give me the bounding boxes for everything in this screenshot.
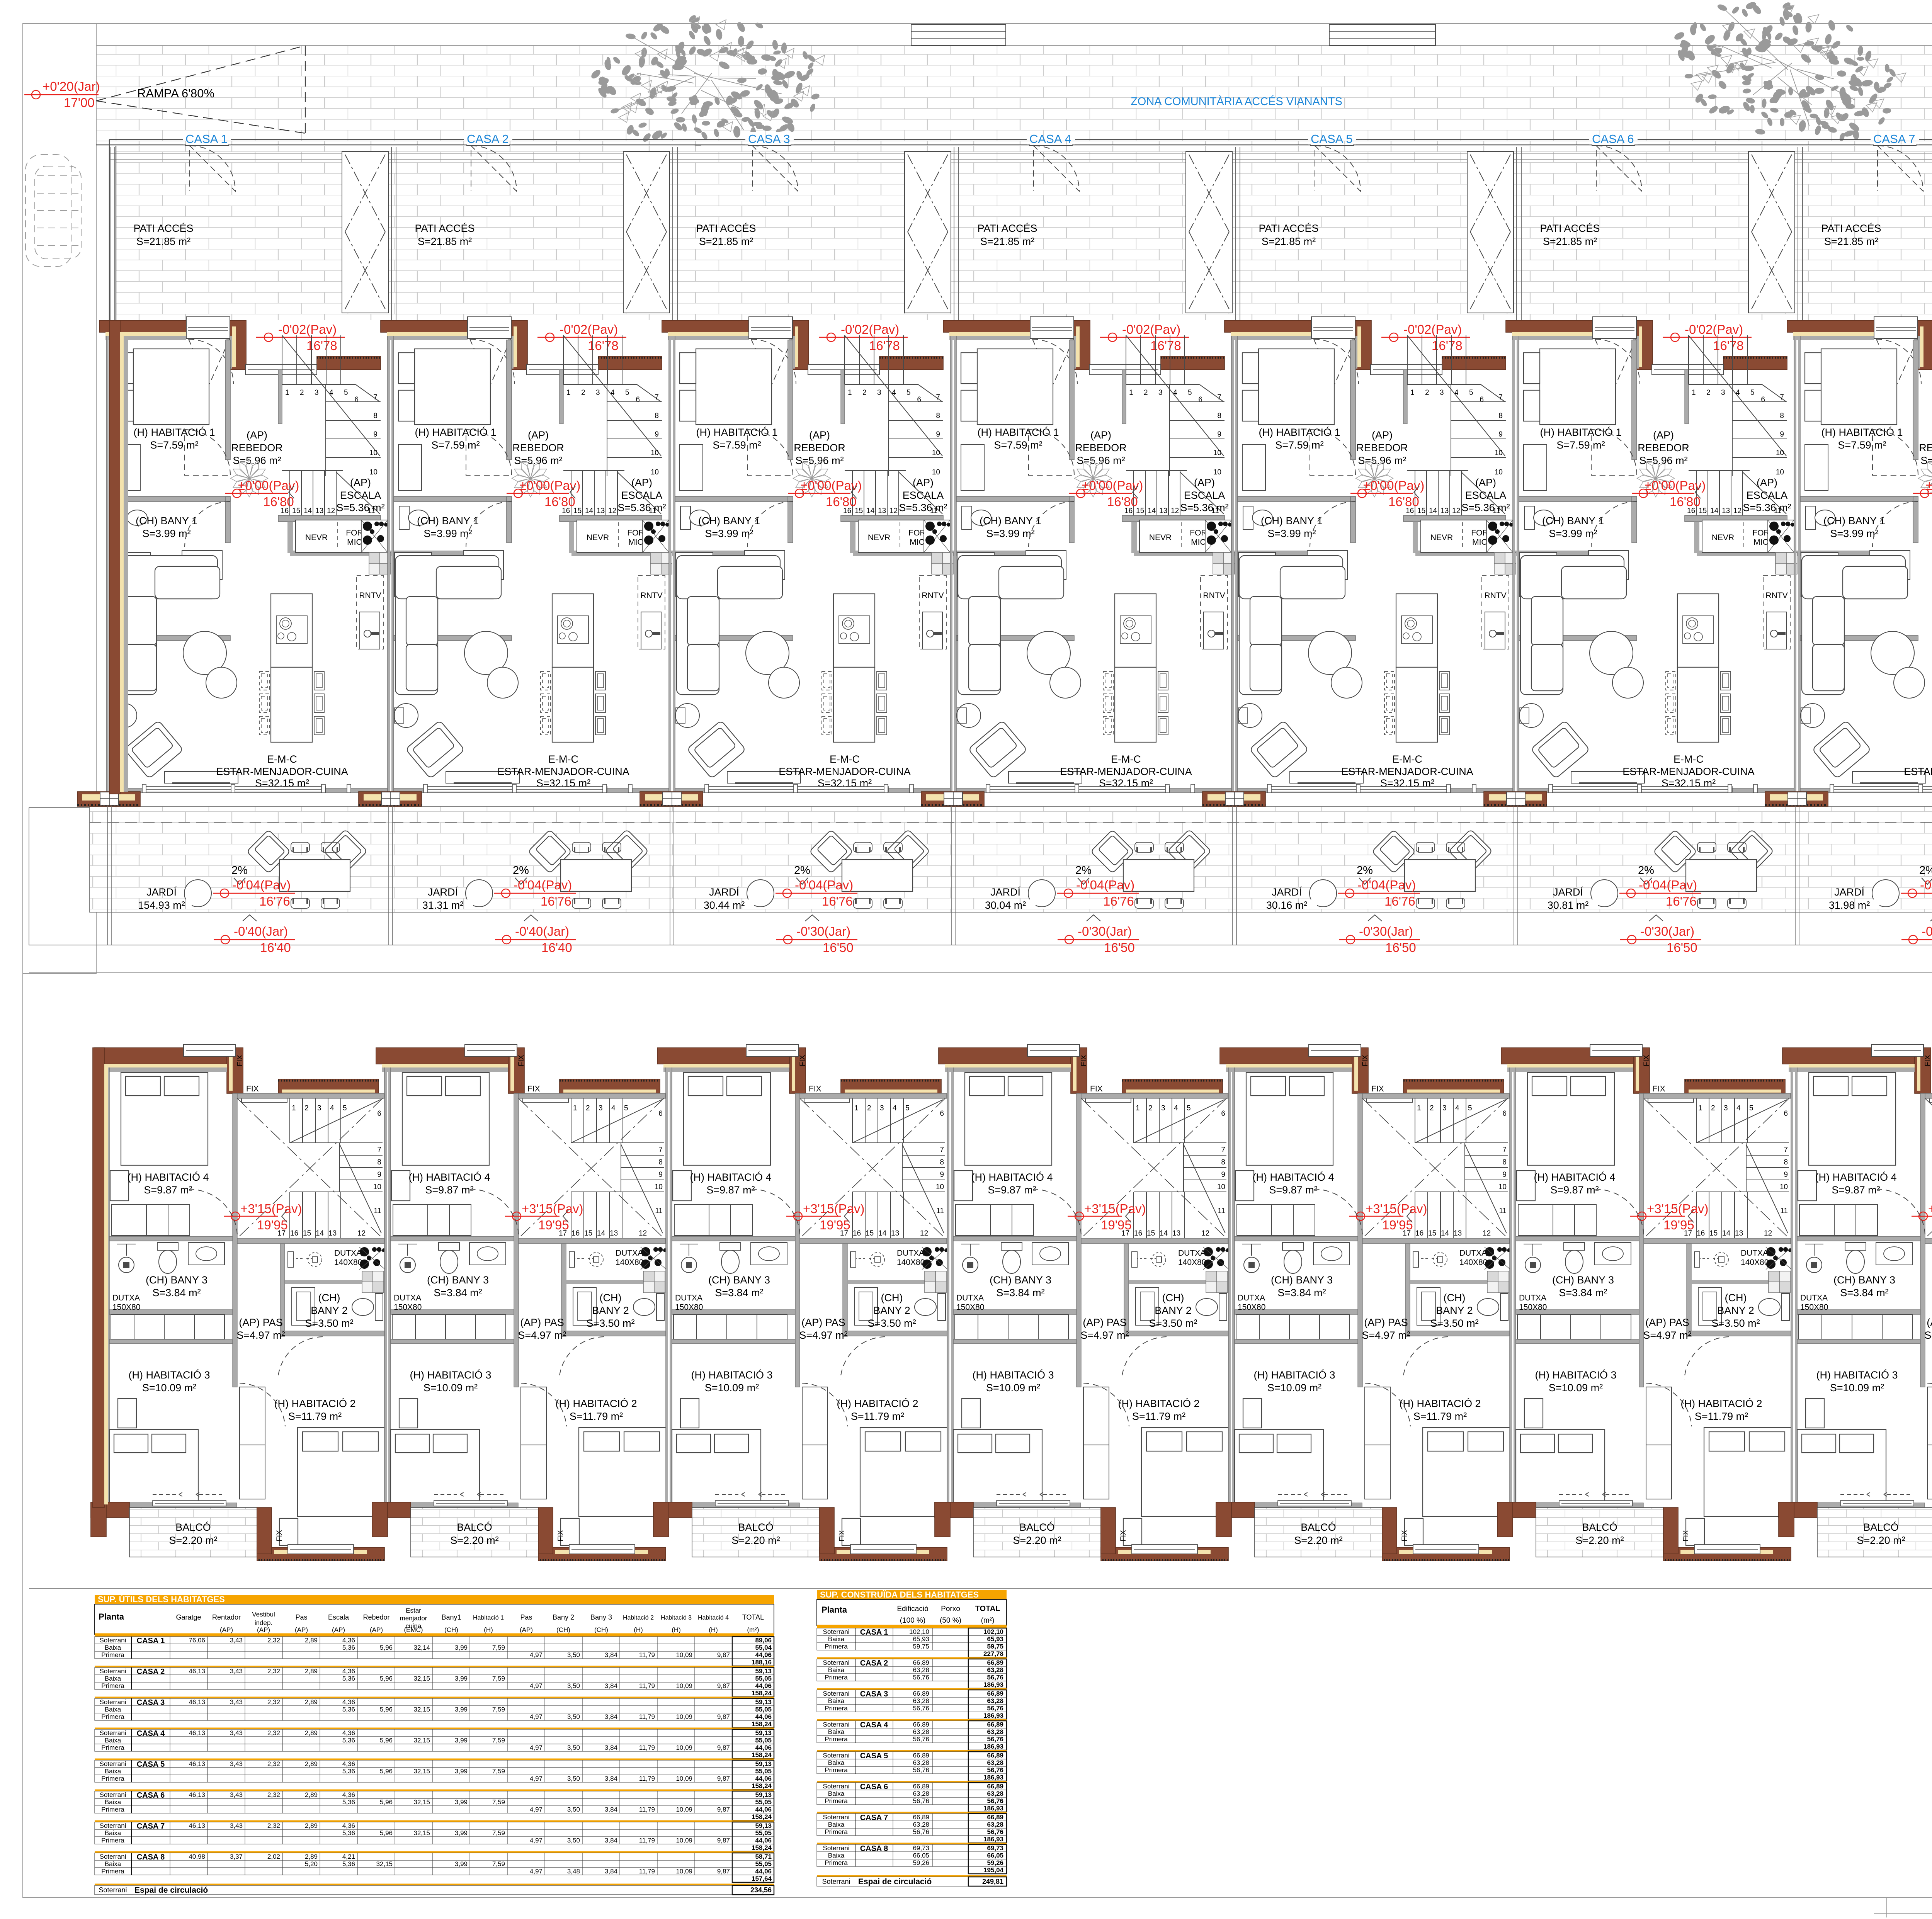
svg-text:63,28: 63,28 [987,1790,1003,1797]
svg-text:2,89: 2,89 [305,1822,318,1829]
svg-text:3,48: 3,48 [567,1868,580,1875]
svg-text:2,32: 2,32 [267,1791,280,1798]
svg-text:(H): (H) [484,1626,493,1633]
svg-text:Primera: Primera [101,1775,124,1782]
svg-text:CASA 4: CASA 4 [860,1721,888,1729]
svg-text:65,93: 65,93 [987,1635,1003,1643]
svg-text:Baixa: Baixa [105,1829,121,1837]
svg-text:249,81: 249,81 [982,1878,1003,1885]
svg-text:30.04 m²: 30.04 m² [985,899,1026,911]
svg-text:CASA 8: CASA 8 [860,1844,888,1853]
svg-text:16'50: 16'50 [1104,940,1135,955]
svg-text:4,21: 4,21 [342,1853,355,1860]
svg-text:55,05: 55,05 [755,1737,772,1744]
svg-text:CASA 2: CASA 2 [860,1659,888,1667]
svg-text:7,59: 7,59 [492,1798,505,1806]
svg-text:(m²): (m²) [981,1616,995,1625]
svg-text:2,32: 2,32 [267,1698,280,1706]
svg-text:(50 %): (50 %) [940,1616,961,1625]
svg-text:Primera: Primera [825,1643,848,1650]
svg-text:(H): (H) [709,1626,718,1633]
svg-text:5,36: 5,36 [342,1644,355,1651]
svg-text:32,15: 32,15 [413,1829,430,1837]
svg-text:46,13: 46,13 [189,1822,205,1829]
svg-text:Baixa: Baixa [828,1666,845,1674]
svg-text:3,99: 3,99 [455,1737,468,1744]
svg-text:66,89: 66,89 [987,1752,1003,1759]
svg-text:158,24: 158,24 [752,1690,772,1697]
svg-text:55,05: 55,05 [755,1675,772,1682]
svg-text:Espai de circulació: Espai de circulació [134,1886,208,1895]
svg-text:TOTAL: TOTAL [742,1613,764,1621]
svg-text:56,76: 56,76 [913,1828,929,1836]
svg-text:59,13: 59,13 [755,1760,772,1768]
svg-text:CASA 3: CASA 3 [860,1690,888,1698]
svg-text:Soterrani: Soterrani [822,1878,850,1885]
svg-text:56,76: 56,76 [913,1674,929,1681]
svg-text:102,10: 102,10 [983,1628,1003,1635]
svg-text:46,13: 46,13 [189,1791,205,1798]
svg-text:31.31 m²: 31.31 m² [422,899,464,911]
svg-text:17'00: 17'00 [64,95,95,110]
svg-text:-0'30(Jar): -0'30(Jar) [1922,924,1932,938]
svg-text:4,36: 4,36 [342,1760,355,1768]
svg-text:-0'30(Jar): -0'30(Jar) [796,924,850,938]
svg-text:30.81 m²: 30.81 m² [1548,899,1589,911]
svg-text:Soterrani: Soterrani [100,1822,126,1829]
svg-text:3,99: 3,99 [455,1706,468,1713]
svg-text:31.98 m²: 31.98 m² [1829,899,1870,911]
svg-text:5,36: 5,36 [342,1706,355,1713]
svg-text:Baixa: Baixa [828,1821,845,1828]
svg-text:59,13: 59,13 [755,1822,772,1829]
svg-text:Pas: Pas [520,1613,532,1621]
svg-text:3,84: 3,84 [605,1775,617,1782]
svg-text:CASA 7: CASA 7 [860,1814,888,1822]
svg-text:Vestibul: Vestibul [252,1611,275,1618]
svg-text:234,56: 234,56 [750,1886,772,1894]
svg-text:9,87: 9,87 [717,1651,730,1659]
svg-text:10,09: 10,09 [676,1713,692,1720]
svg-text:Primera: Primera [825,1735,848,1743]
svg-text:186,93: 186,93 [983,1712,1003,1719]
svg-text:2,32: 2,32 [267,1729,280,1737]
svg-text:63,28: 63,28 [987,1666,1003,1674]
svg-text:3,50: 3,50 [567,1744,580,1751]
svg-text:2,89: 2,89 [305,1729,318,1737]
svg-text:63,28: 63,28 [913,1759,929,1766]
svg-text:46,13: 46,13 [189,1698,205,1706]
svg-text:2,32: 2,32 [267,1760,280,1768]
svg-text:CASA 4: CASA 4 [137,1729,165,1738]
svg-text:5,96: 5,96 [380,1644,393,1651]
svg-text:102,10: 102,10 [909,1628,929,1635]
svg-text:Habitació 1: Habitació 1 [473,1615,504,1621]
svg-text:Rentador: Rentador [212,1613,241,1621]
svg-text:4,97: 4,97 [530,1837,543,1844]
svg-text:11,79: 11,79 [639,1806,655,1813]
svg-text:16'50: 16'50 [1667,940,1697,955]
svg-text:66,89: 66,89 [913,1690,929,1697]
svg-text:69,73: 69,73 [913,1844,929,1852]
svg-text:3,43: 3,43 [230,1791,243,1798]
svg-text:CASA 4: CASA 4 [1029,132,1071,146]
svg-text:-0'30(Jar): -0'30(Jar) [1359,924,1413,938]
svg-text:Soterrani: Soterrani [100,1667,126,1675]
svg-text:59,75: 59,75 [913,1643,929,1650]
svg-text:16'40: 16'40 [541,940,572,955]
svg-text:Soterrani: Soterrani [100,1791,126,1798]
svg-text:Soterrani: Soterrani [823,1659,850,1666]
svg-text:7,59: 7,59 [492,1706,505,1713]
svg-text:55,05: 55,05 [755,1860,772,1868]
svg-text:3,50: 3,50 [567,1837,580,1844]
svg-text:56,76: 56,76 [913,1735,929,1743]
svg-text:CASA 2: CASA 2 [467,132,509,146]
svg-text:3,99: 3,99 [455,1829,468,1837]
svg-text:11,79: 11,79 [639,1682,655,1690]
svg-text:Primera: Primera [101,1868,124,1875]
svg-text:66,05: 66,05 [987,1852,1003,1859]
svg-text:Habitació 3: Habitació 3 [661,1615,692,1621]
svg-text:11,79: 11,79 [639,1775,655,1782]
svg-text:SUP. ÚTILS DELS HABITATGES: SUP. ÚTILS DELS HABITATGES [98,1594,225,1604]
svg-text:3,99: 3,99 [455,1768,468,1775]
svg-text:CASA 7: CASA 7 [1873,132,1915,146]
svg-text:3,84: 3,84 [605,1837,617,1844]
svg-text:5,96: 5,96 [380,1675,393,1682]
svg-text:66,89: 66,89 [913,1721,929,1728]
svg-text:3,37: 3,37 [230,1853,243,1860]
svg-text:154.93 m²: 154.93 m² [138,899,185,911]
svg-text:46,13: 46,13 [189,1667,205,1675]
svg-text:5,96: 5,96 [380,1768,393,1775]
svg-text:3,50: 3,50 [567,1775,580,1782]
svg-text:Primera: Primera [101,1682,124,1690]
svg-text:59,13: 59,13 [755,1667,772,1675]
svg-text:3,99: 3,99 [455,1860,468,1868]
svg-text:5,36: 5,36 [342,1737,355,1744]
svg-text:Soterrani: Soterrani [823,1783,850,1790]
svg-text:Baixa: Baixa [105,1768,121,1775]
svg-text:157,64: 157,64 [752,1875,772,1882]
svg-text:11,79: 11,79 [639,1713,655,1720]
svg-text:4,97: 4,97 [530,1744,543,1751]
svg-text:-0'30(Jar): -0'30(Jar) [1078,924,1132,938]
svg-text:2,89: 2,89 [305,1791,318,1798]
svg-text:59,13: 59,13 [755,1729,772,1737]
svg-text:56,76: 56,76 [913,1797,929,1805]
svg-text:Primera: Primera [101,1806,124,1813]
svg-text:menjador: menjador [400,1615,427,1622]
svg-text:CASA 6: CASA 6 [1592,132,1634,146]
svg-text:195,04: 195,04 [983,1866,1004,1874]
svg-text:Primera: Primera [101,1744,124,1751]
svg-text:CASA 6: CASA 6 [860,1783,888,1791]
svg-text:32,14: 32,14 [413,1644,430,1651]
svg-text:11,79: 11,79 [639,1651,655,1659]
svg-text:7,59: 7,59 [492,1675,505,1682]
svg-text:Baixa: Baixa [828,1728,845,1735]
svg-text:(H): (H) [672,1626,681,1633]
svg-text:Primera: Primera [825,1766,848,1774]
svg-text:CASA 3: CASA 3 [137,1698,165,1707]
svg-text:(CH): (CH) [594,1626,608,1633]
svg-text:11,79: 11,79 [639,1868,655,1875]
svg-text:32,15: 32,15 [413,1768,430,1775]
svg-text:(100 %): (100 %) [900,1616,926,1625]
svg-text:Soterrani: Soterrani [823,1814,850,1821]
svg-text:9,87: 9,87 [717,1806,730,1813]
svg-text:7,59: 7,59 [492,1860,505,1868]
svg-text:Baixa: Baixa [105,1860,121,1868]
svg-text:4,36: 4,36 [342,1637,355,1644]
svg-text:Soterrani: Soterrani [100,1698,126,1706]
svg-text:(CH): (CH) [556,1626,570,1633]
svg-text:RAMPA 6'80%: RAMPA 6'80% [137,87,214,100]
svg-text:TOTAL: TOTAL [975,1605,1000,1613]
svg-text:63,28: 63,28 [987,1821,1003,1828]
svg-text:4,97: 4,97 [530,1651,543,1659]
svg-text:56,76: 56,76 [913,1766,929,1774]
svg-text:69,73: 69,73 [987,1844,1003,1852]
svg-text:10,09: 10,09 [676,1837,692,1844]
svg-text:30.44 m²: 30.44 m² [704,899,745,911]
svg-text:56,76: 56,76 [987,1797,1003,1805]
svg-text:66,89: 66,89 [987,1659,1003,1666]
svg-text:Soterrani: Soterrani [823,1721,850,1728]
svg-text:58,71: 58,71 [755,1853,772,1860]
svg-text:44,06: 44,06 [755,1651,772,1659]
svg-text:CASA 7: CASA 7 [137,1822,165,1831]
svg-text:55,05: 55,05 [755,1829,772,1837]
svg-text:16'40: 16'40 [260,940,291,955]
svg-text:10,09: 10,09 [676,1744,692,1751]
svg-text:CASA 5: CASA 5 [860,1752,888,1760]
svg-text:5,36: 5,36 [342,1860,355,1868]
svg-text:11,79: 11,79 [639,1837,655,1844]
svg-text:55,05: 55,05 [755,1798,772,1806]
svg-text:5,96: 5,96 [380,1798,393,1806]
svg-text:66,89: 66,89 [913,1659,929,1666]
svg-text:Soterrani: Soterrani [823,1628,850,1635]
svg-text:44,06: 44,06 [755,1682,772,1690]
svg-text:2,02: 2,02 [267,1853,280,1860]
svg-text:Soterrani: Soterrani [823,1690,850,1697]
svg-text:CASA 3: CASA 3 [748,132,790,146]
svg-text:66,89: 66,89 [987,1814,1003,1821]
svg-text:(AP): (AP) [332,1626,345,1633]
svg-text:66,89: 66,89 [987,1783,1003,1790]
svg-text:56,76: 56,76 [987,1674,1003,1681]
svg-text:CASA 5: CASA 5 [137,1760,165,1769]
svg-text:186,93: 186,93 [983,1681,1003,1688]
svg-text:4,36: 4,36 [342,1698,355,1706]
svg-text:44,06: 44,06 [755,1837,772,1844]
svg-text:32,15: 32,15 [413,1675,430,1682]
svg-text:(EMC): (EMC) [404,1626,423,1633]
svg-text:186,93: 186,93 [983,1743,1003,1750]
svg-text:4,97: 4,97 [530,1806,543,1813]
svg-text:Planta: Planta [821,1605,847,1615]
svg-text:9,87: 9,87 [717,1682,730,1690]
svg-text:158,24: 158,24 [752,1844,772,1851]
svg-text:4,97: 4,97 [530,1868,543,1875]
svg-text:Soterrani: Soterrani [100,1853,126,1860]
svg-text:3,50: 3,50 [567,1713,580,1720]
svg-text:Garatge: Garatge [176,1613,201,1621]
svg-text:63,28: 63,28 [913,1790,929,1797]
svg-text:3,99: 3,99 [455,1798,468,1806]
svg-text:186,93: 186,93 [983,1774,1003,1781]
svg-text:3,99: 3,99 [455,1675,468,1682]
svg-text:Bany 2: Bany 2 [553,1613,574,1621]
svg-text:Soterrani: Soterrani [823,1752,850,1759]
svg-text:4,36: 4,36 [342,1791,355,1798]
svg-text:56,76: 56,76 [987,1705,1003,1712]
svg-text:2,89: 2,89 [305,1698,318,1706]
svg-text:40,98: 40,98 [189,1853,205,1860]
svg-text:9,87: 9,87 [717,1713,730,1720]
svg-text:Edificació: Edificació [897,1605,928,1613]
svg-text:9,87: 9,87 [717,1868,730,1875]
svg-text:(AP): (AP) [220,1626,233,1633]
svg-text:Rebedor: Rebedor [363,1613,389,1621]
svg-text:Primera: Primera [825,1828,848,1836]
svg-text:63,28: 63,28 [987,1697,1003,1705]
svg-text:66,89: 66,89 [913,1783,929,1790]
svg-text:59,13: 59,13 [755,1698,772,1706]
svg-text:66,89: 66,89 [913,1752,929,1759]
svg-text:65,93: 65,93 [913,1635,929,1643]
svg-text:SUP. CONSTRUÏDA DELS HABITATGE: SUP. CONSTRUÏDA DELS HABITATGES [820,1590,979,1599]
svg-text:44,06: 44,06 [755,1775,772,1782]
svg-text:3,43: 3,43 [230,1760,243,1768]
svg-text:3,50: 3,50 [567,1651,580,1659]
svg-text:4,36: 4,36 [342,1667,355,1675]
svg-text:2,89: 2,89 [305,1637,318,1644]
svg-text:Soterrani: Soterrani [100,1760,126,1768]
svg-text:5,20: 5,20 [305,1860,318,1868]
svg-text:4,97: 4,97 [530,1682,543,1690]
svg-text:ZONA COMUNITÀRIA ACCÉS VIANANT: ZONA COMUNITÀRIA ACCÉS VIANANTS [1131,95,1342,108]
svg-text:59,75: 59,75 [987,1643,1003,1650]
svg-text:63,28: 63,28 [913,1728,929,1735]
svg-text:10,09: 10,09 [676,1775,692,1782]
svg-text:CASA 2: CASA 2 [137,1667,165,1676]
svg-text:188,16: 188,16 [752,1659,772,1666]
svg-text:44,06: 44,06 [755,1806,772,1813]
svg-text:44,06: 44,06 [755,1713,772,1720]
svg-text:4,36: 4,36 [342,1729,355,1737]
svg-text:CASA 1: CASA 1 [137,1637,165,1645]
svg-text:3,43: 3,43 [230,1698,243,1706]
svg-text:32,15: 32,15 [376,1860,393,1868]
svg-text:Baixa: Baixa [828,1852,845,1859]
svg-text:9,87: 9,87 [717,1775,730,1782]
svg-text:10,09: 10,09 [676,1682,692,1690]
svg-text:Habitació 4: Habitació 4 [698,1615,729,1621]
svg-text:Primera: Primera [825,1674,848,1681]
svg-text:9,87: 9,87 [717,1837,730,1844]
svg-text:32,15: 32,15 [413,1798,430,1806]
svg-text:46,13: 46,13 [189,1729,205,1737]
svg-text:30.16 m²: 30.16 m² [1266,899,1308,911]
svg-text:3,50: 3,50 [567,1682,580,1690]
svg-text:-0'30(Jar): -0'30(Jar) [1640,924,1694,938]
svg-text:9,87: 9,87 [717,1744,730,1751]
svg-text:5,36: 5,36 [342,1768,355,1775]
svg-text:CASA 1: CASA 1 [185,132,228,146]
svg-text:-0'40(Jar): -0'40(Jar) [515,924,569,938]
svg-text:32,15: 32,15 [413,1737,430,1744]
svg-text:63,28: 63,28 [987,1759,1003,1766]
svg-text:Escala: Escala [328,1613,349,1621]
svg-text:5,36: 5,36 [342,1829,355,1837]
svg-text:-0'40(Jar): -0'40(Jar) [234,924,288,938]
svg-text:Estar: Estar [406,1607,421,1614]
svg-text:2,32: 2,32 [267,1822,280,1829]
svg-text:16'50: 16'50 [1385,940,1416,955]
svg-text:CASA 8: CASA 8 [137,1853,165,1861]
svg-text:3,84: 3,84 [605,1806,617,1813]
svg-text:44,06: 44,06 [755,1868,772,1875]
svg-text:55,05: 55,05 [755,1706,772,1713]
svg-text:46,13: 46,13 [189,1760,205,1768]
svg-text:(AP): (AP) [370,1626,383,1633]
svg-text:56,76: 56,76 [987,1735,1003,1743]
svg-text:Bany1: Bany1 [441,1613,461,1621]
svg-text:Primera: Primera [825,1705,848,1712]
svg-text:3,43: 3,43 [230,1729,243,1737]
svg-text:7,59: 7,59 [492,1768,505,1775]
svg-text:158,24: 158,24 [752,1782,772,1790]
svg-text:66,89: 66,89 [913,1814,929,1821]
svg-text:4,36: 4,36 [342,1822,355,1829]
svg-text:Pas: Pas [295,1613,307,1621]
svg-text:Baixa: Baixa [828,1697,845,1705]
svg-text:186,93: 186,93 [983,1805,1003,1812]
svg-text:Bany 3: Bany 3 [590,1613,612,1621]
svg-text:10,09: 10,09 [676,1651,692,1659]
svg-text:Primera: Primera [101,1713,124,1720]
svg-text:66,05: 66,05 [913,1852,929,1859]
svg-text:2,32: 2,32 [267,1637,280,1644]
svg-text:11,79: 11,79 [639,1744,655,1751]
svg-text:2,89: 2,89 [305,1667,318,1675]
svg-text:3,84: 3,84 [605,1682,617,1690]
svg-text:Primera: Primera [825,1859,848,1866]
svg-text:+0'20(Jar): +0'20(Jar) [43,79,100,93]
svg-text:(H): (H) [634,1626,643,1633]
svg-text:Baixa: Baixa [105,1675,121,1682]
svg-text:44,06: 44,06 [755,1744,772,1751]
svg-text:158,24: 158,24 [752,1720,772,1728]
svg-text:(AP): (AP) [257,1626,270,1633]
svg-text:55,05: 55,05 [755,1768,772,1775]
svg-text:2,89: 2,89 [305,1760,318,1768]
svg-text:CASA 6: CASA 6 [137,1791,165,1800]
svg-text:3,50: 3,50 [567,1806,580,1813]
svg-text:CASA 1: CASA 1 [860,1628,888,1637]
svg-text:3,43: 3,43 [230,1637,243,1644]
svg-text:5,96: 5,96 [380,1706,393,1713]
svg-text:Soterrani: Soterrani [99,1886,127,1894]
svg-text:Soterrani: Soterrani [823,1844,850,1852]
svg-text:Baixa: Baixa [105,1737,121,1744]
svg-text:66,89: 66,89 [987,1721,1003,1728]
svg-text:Habitació 2: Habitació 2 [623,1615,654,1621]
